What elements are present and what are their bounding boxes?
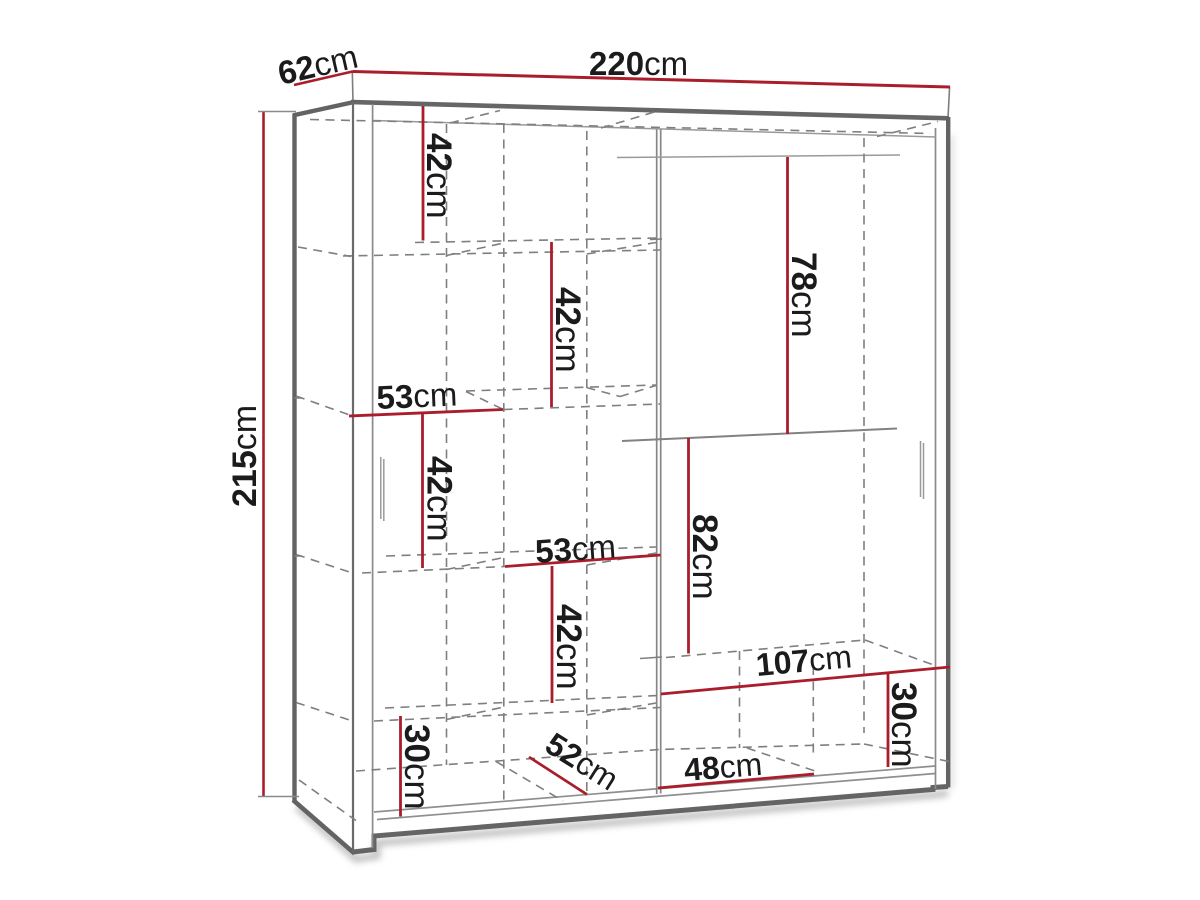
svg-text:82cm: 82cm — [685, 514, 724, 600]
svg-text:42cm: 42cm — [420, 456, 459, 542]
svg-text:42cm: 42cm — [419, 133, 458, 219]
svg-text:78cm: 78cm — [784, 252, 823, 338]
svg-text:52cm: 52cm — [539, 725, 624, 797]
svg-text:42cm: 42cm — [549, 604, 588, 690]
svg-text:42cm: 42cm — [548, 287, 587, 373]
svg-text:220cm: 220cm — [589, 45, 688, 82]
svg-text:62cm: 62cm — [274, 38, 361, 92]
svg-text:30cm: 30cm — [884, 682, 923, 768]
svg-text:48cm: 48cm — [683, 746, 764, 788]
svg-text:215cm: 215cm — [226, 405, 264, 507]
svg-text:53cm: 53cm — [376, 376, 458, 416]
svg-text:53cm: 53cm — [534, 527, 617, 570]
svg-text:30cm: 30cm — [397, 724, 436, 810]
